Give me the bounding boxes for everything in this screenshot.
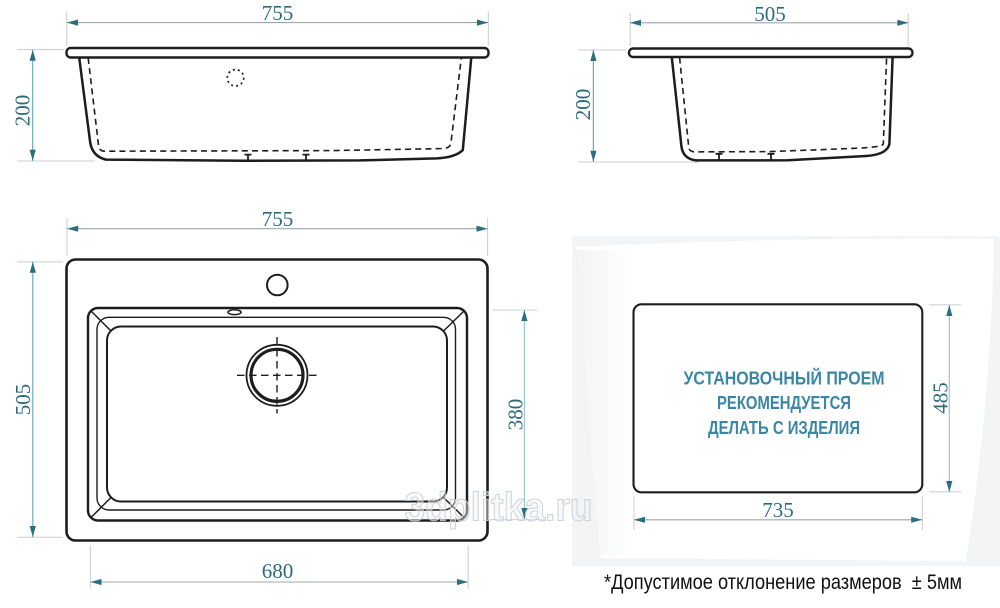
svg-text:*Допустимое отклонение размеро: *Допустимое отклонение размеров ± 5мм [604, 571, 962, 594]
svg-text:ДЕЛАТЬ С ИЗДЕЛИЯ: ДЕЛАТЬ С ИЗДЕЛИЯ [708, 417, 860, 438]
svg-text:735: 735 [762, 498, 794, 522]
svg-text:3dplitka.ru: 3dplitka.ru [405, 486, 593, 530]
svg-text:755: 755 [262, 1, 294, 25]
svg-text:505: 505 [11, 384, 35, 416]
svg-text:505: 505 [754, 2, 786, 26]
svg-text:485: 485 [929, 382, 953, 414]
svg-text:680: 680 [262, 559, 294, 583]
svg-text:200: 200 [571, 89, 595, 121]
svg-text:380: 380 [504, 399, 528, 431]
svg-text:200: 200 [11, 95, 35, 127]
svg-text:755: 755 [262, 207, 294, 231]
svg-text:РЕКОМЕНДУЕТСЯ: РЕКОМЕНДУЕТСЯ [717, 392, 851, 413]
svg-text:УСТАНОВОЧНЫЙ ПРОЕМ: УСТАНОВОЧНЫЙ ПРОЕМ [684, 368, 885, 389]
